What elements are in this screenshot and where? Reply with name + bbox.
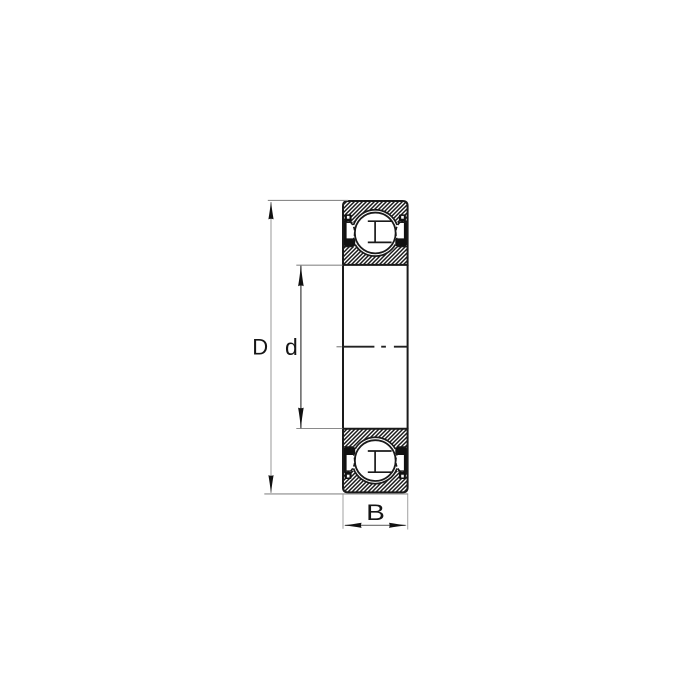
svg-text:B: B	[366, 500, 385, 525]
svg-text:D: D	[252, 335, 268, 360]
svg-text:d: d	[285, 334, 298, 360]
